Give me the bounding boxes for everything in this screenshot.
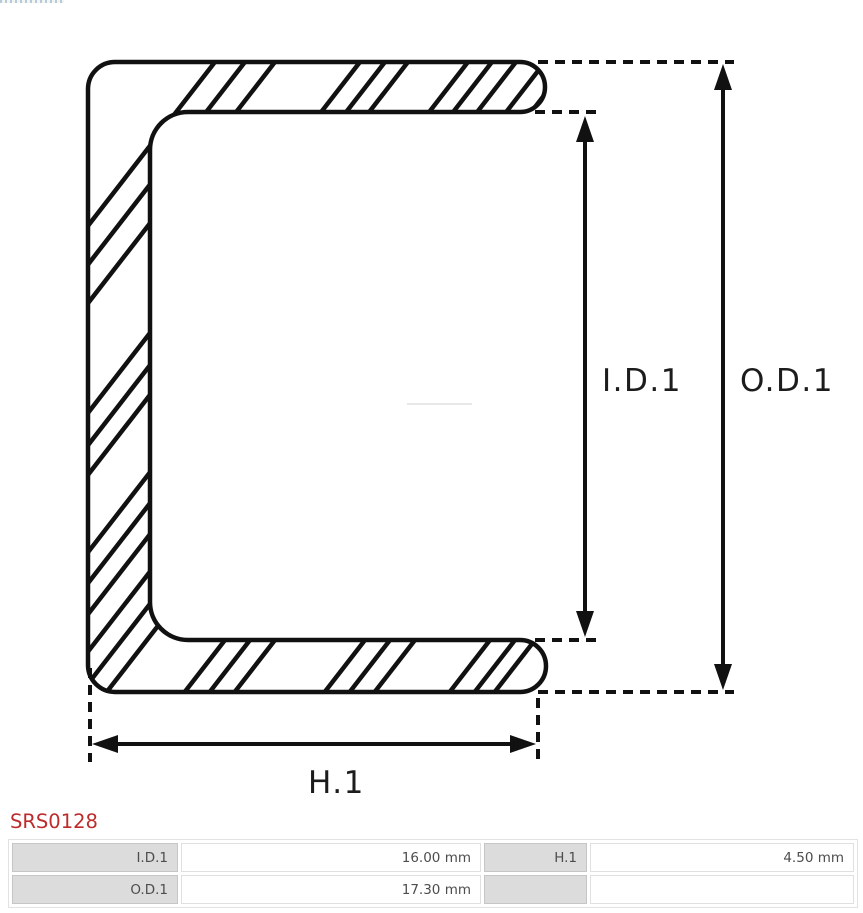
spec-label-id1: I.D.1 xyxy=(12,843,178,872)
table-row: I.D.1 16.00 mm H.1 4.50 mm xyxy=(12,843,854,872)
od1-label: O.D.1 xyxy=(740,363,834,399)
extension-lines xyxy=(90,62,734,762)
spec-value-h1: 4.50 mm xyxy=(590,843,854,872)
table-row: O.D.1 17.30 mm xyxy=(12,875,854,904)
part-number: SRS0128 xyxy=(10,810,98,833)
h1-dimension-arrow xyxy=(92,735,536,753)
id1-dimension-arrow xyxy=(576,116,594,637)
spec-label-h1: H.1 xyxy=(484,843,587,872)
page: I.D.1 O.D.1 H.1 SRS0128 I.D.1 16.00 mm H… xyxy=(0,0,863,913)
spec-table: I.D.1 16.00 mm H.1 4.50 mm O.D.1 17.30 m… xyxy=(8,839,858,908)
technical-drawing: I.D.1 O.D.1 H.1 xyxy=(0,0,863,810)
h1-label: H.1 xyxy=(308,765,365,801)
od1-dimension-arrow xyxy=(714,64,732,690)
spec-value-od1: 17.30 mm xyxy=(181,875,481,904)
profile-outline xyxy=(88,62,546,692)
spec-label-empty xyxy=(484,875,587,904)
spec-value-id1: 16.00 mm xyxy=(181,843,481,872)
hatch-lines xyxy=(0,40,863,720)
spec-value-empty xyxy=(590,875,854,904)
id1-label: I.D.1 xyxy=(602,363,682,399)
spec-label-od1: O.D.1 xyxy=(12,875,178,904)
